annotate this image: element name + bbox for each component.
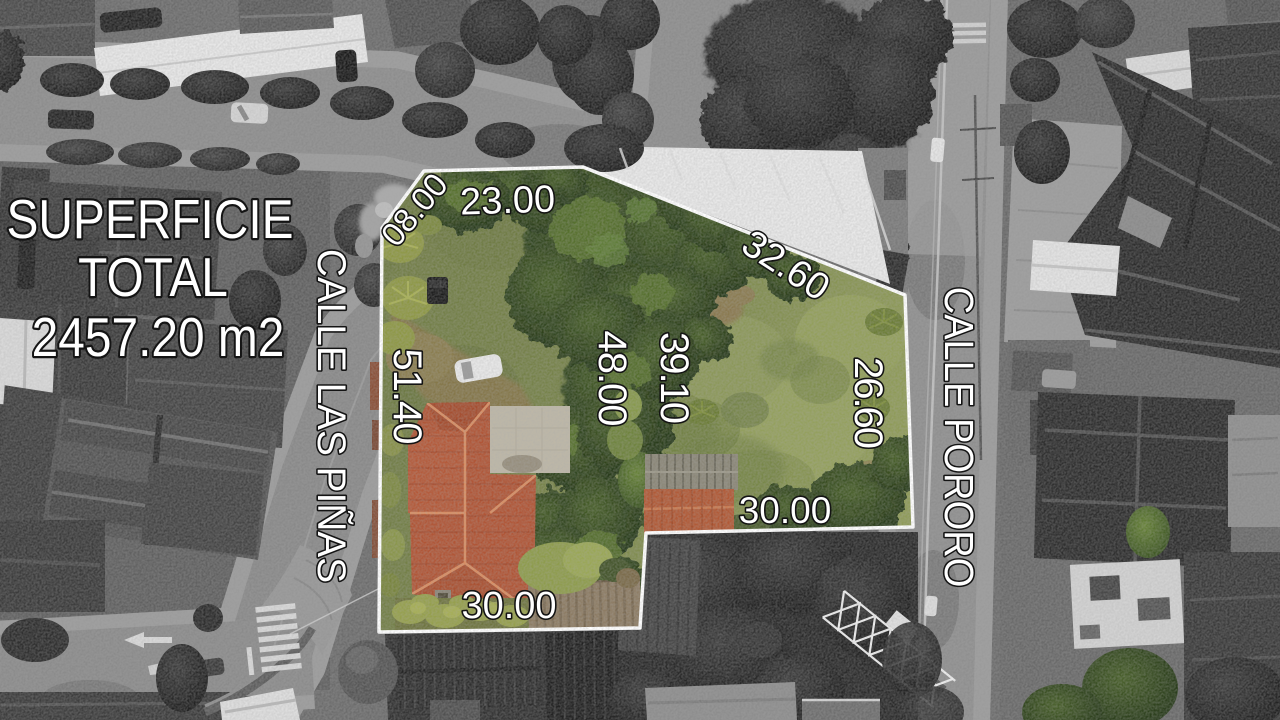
svg-text:26.60: 26.60 — [846, 357, 890, 448]
svg-text:CALLE PORORO: CALLE PORORO — [936, 287, 982, 588]
svg-text:39.10: 39.10 — [652, 332, 696, 423]
svg-text:2457.20 m2: 2457.20 m2 — [32, 306, 285, 368]
svg-text:CALLE LAS PIÑAS: CALLE LAS PIÑAS — [309, 249, 354, 583]
svg-text:23.00: 23.00 — [459, 178, 556, 223]
svg-text:30.00: 30.00 — [461, 585, 556, 627]
svg-text:51.40: 51.40 — [385, 348, 429, 443]
svg-text:SUPERFICIE: SUPERFICIE — [6, 188, 293, 250]
svg-text:30.00: 30.00 — [739, 490, 832, 531]
svg-text:TOTAL: TOTAL — [78, 246, 228, 308]
svg-text:48.00: 48.00 — [590, 330, 634, 425]
